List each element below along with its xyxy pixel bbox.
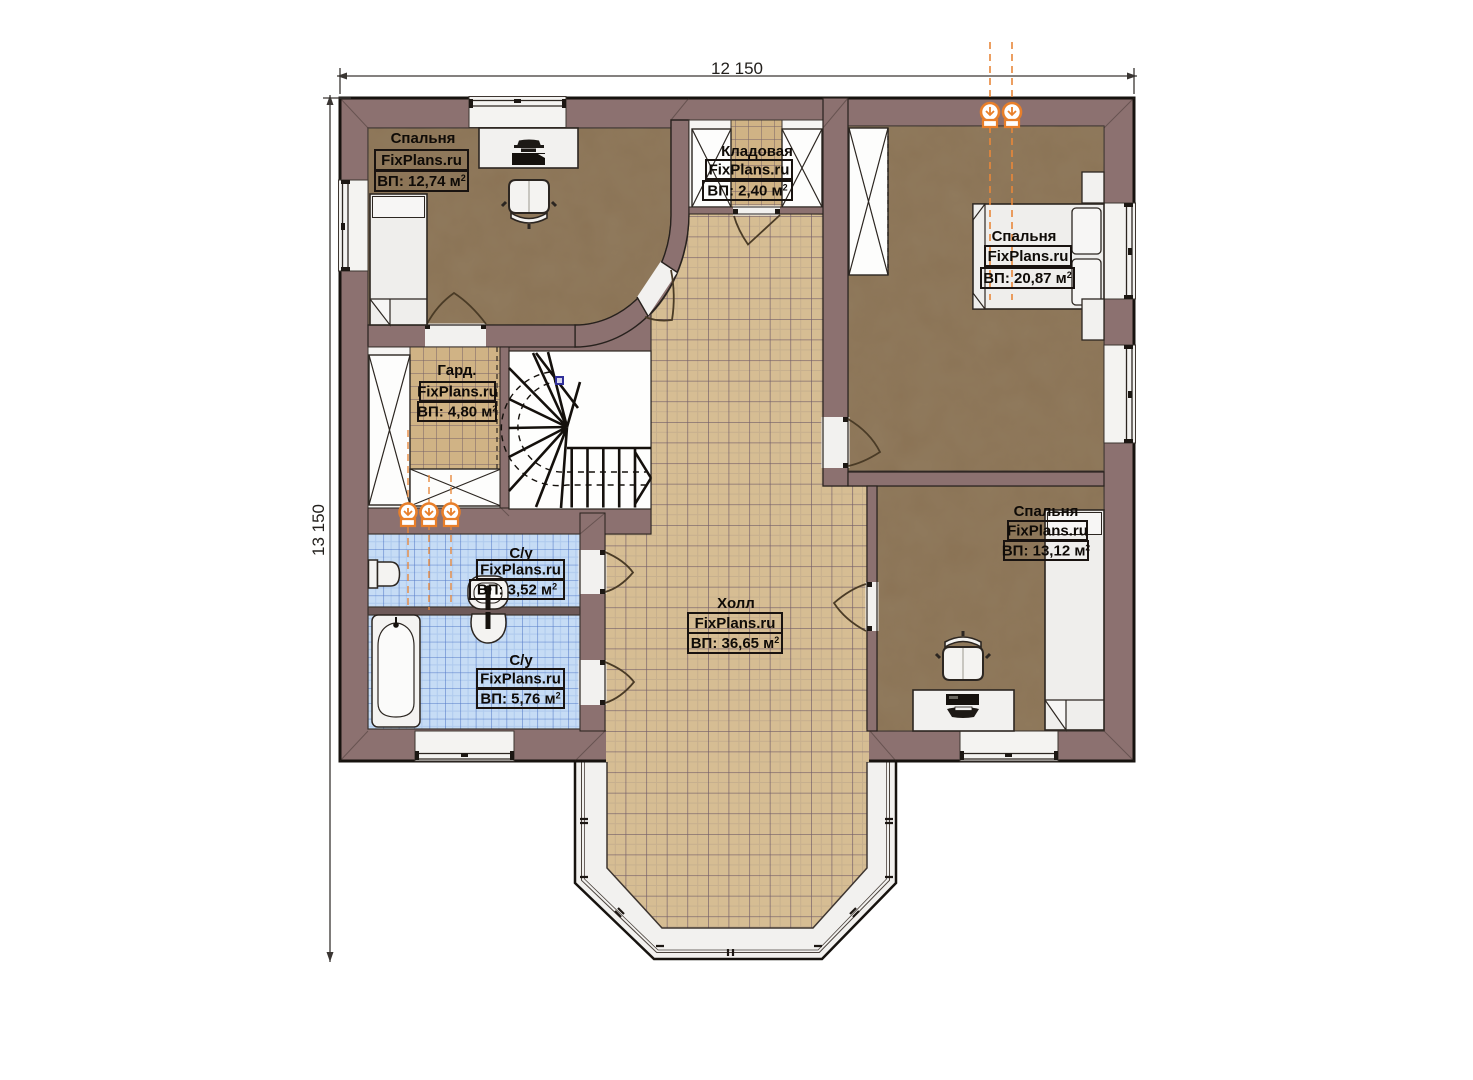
svg-text:ВП: 3,52 м2: ВП: 3,52 м2 [477,582,557,599]
svg-text:Спальня: Спальня [992,228,1057,245]
svg-text:13 150: 13 150 [309,504,328,556]
svg-text:ВП: 36,65 м2: ВП: 36,65 м2 [691,635,780,652]
svg-text:ВП: 13,12 м2: ВП: 13,12 м2 [1002,543,1091,560]
svg-text:Холл: Холл [717,595,755,612]
svg-text:С/у: С/у [509,652,533,669]
svg-text:Гард.: Гард. [437,362,476,379]
svg-text:ВП: 4,80 м2: ВП: 4,80 м2 [417,404,497,421]
svg-text:ВП: 2,40 м2: ВП: 2,40 м2 [707,183,787,200]
svg-text:FixPlans.ru: FixPlans.ru [1007,523,1088,540]
svg-text:ВП: 20,87 м2: ВП: 20,87 м2 [983,270,1072,287]
svg-text:FixPlans.ru: FixPlans.ru [480,671,561,688]
svg-text:Спальня: Спальня [391,130,456,147]
svg-text:FixPlans.ru: FixPlans.ru [988,248,1069,265]
svg-text:ВП: 5,76 м2: ВП: 5,76 м2 [480,691,560,708]
svg-text:FixPlans.ru: FixPlans.ru [417,384,498,401]
svg-text:FixPlans.ru: FixPlans.ru [480,562,561,579]
svg-text:FixPlans.ru: FixPlans.ru [695,615,776,632]
svg-text:FixPlans.ru: FixPlans.ru [709,162,790,179]
svg-text:ВП: 12,74 м2: ВП: 12,74 м2 [377,173,466,190]
svg-text:Кладовая: Кладовая [721,143,793,160]
svg-text:FixPlans.ru: FixPlans.ru [381,152,462,169]
svg-text:Спальня: Спальня [1014,503,1079,520]
svg-text:12 150: 12 150 [711,59,763,78]
